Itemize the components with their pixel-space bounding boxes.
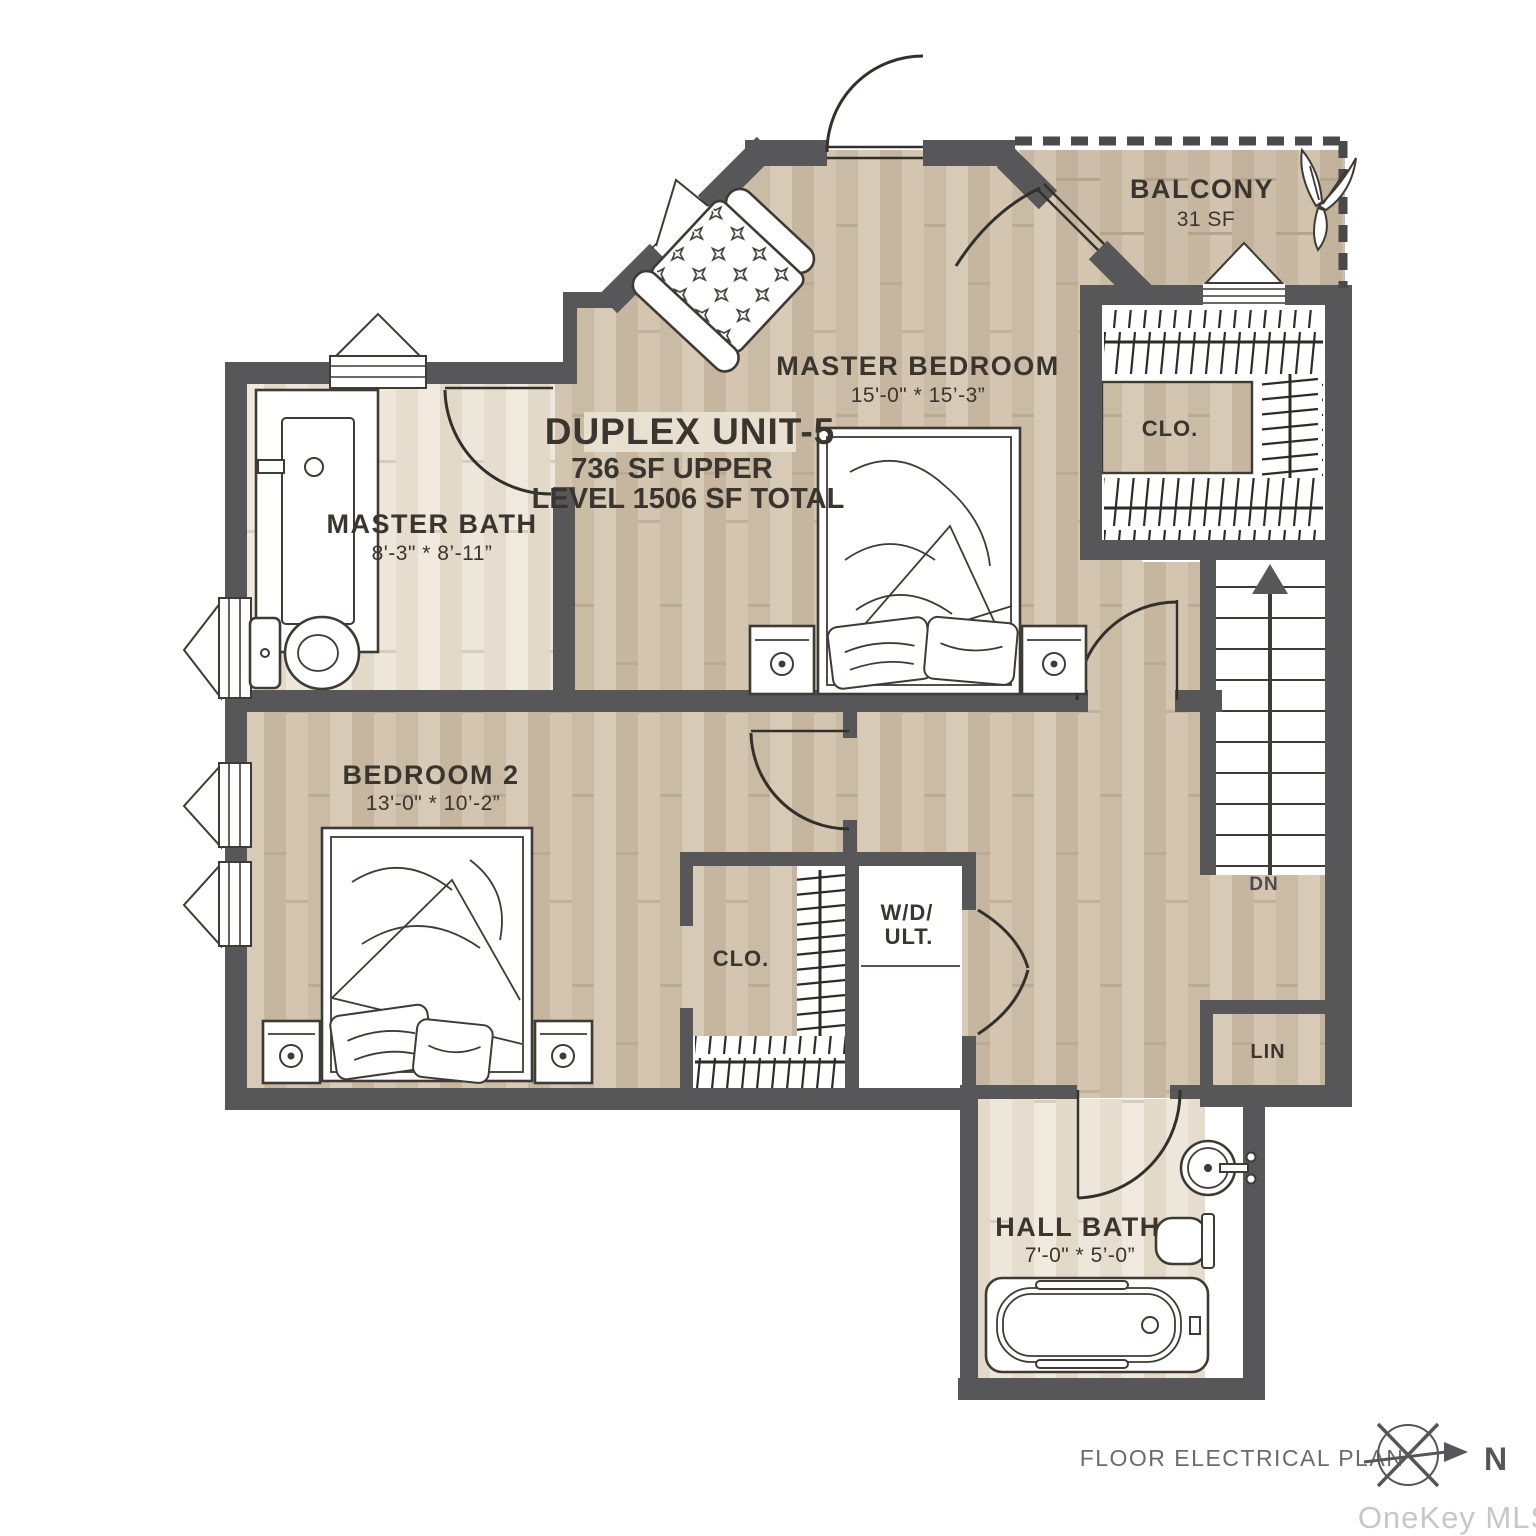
- laundry-label-2: ULT.: [885, 924, 934, 949]
- unit-title: DUPLEX UNIT-5: [545, 411, 836, 452]
- laundry-label-1: W/D/: [881, 900, 934, 925]
- master-bath-dims: 8'-3" * 8’-11”: [372, 542, 493, 565]
- hall-bath-label: HALL BATH: [995, 1212, 1160, 1242]
- bedroom2-closet-label: CLO.: [713, 946, 770, 971]
- bath-top-window: [330, 314, 426, 388]
- compass-north-label: N: [1484, 1441, 1507, 1477]
- master-nightstand-left: [750, 626, 814, 694]
- walkin-closet-label: CLO.: [1142, 416, 1199, 441]
- master-nightstand-right: [1022, 626, 1086, 694]
- master-bath-toilet: [250, 617, 359, 689]
- hall-bath-toilet: [1156, 1214, 1214, 1268]
- watermark: OneKey MLS: [1358, 1500, 1536, 1535]
- master-bedroom-label: MASTER BEDROOM: [776, 351, 1060, 381]
- hall-bath-dims: 7'-0" * 5’-0”: [1025, 1244, 1135, 1267]
- bedroom2-nightstand-left: [263, 1021, 320, 1083]
- master-bedroom-top-door: [827, 56, 923, 158]
- bedroom2-label: BEDROOM 2: [342, 760, 519, 790]
- bedroom2-left-window-2: [184, 862, 251, 946]
- unit-area-line1: 736 SF UPPER: [571, 453, 773, 485]
- balcony-label: BALCONY: [1130, 174, 1274, 204]
- plan-type-label: FLOOR ELECTRICAL PLAN: [1080, 1445, 1405, 1471]
- bedroom2-nightstand-right: [535, 1021, 592, 1083]
- bath-left-window: [184, 598, 251, 698]
- floor-plan-page: BALCONY 31 SF MASTER BEDROOM 15'-0" * 15…: [0, 0, 1536, 1536]
- linen-label: LIN: [1250, 1041, 1285, 1063]
- master-bed: [818, 428, 1020, 694]
- footer: FLOOR ELECTRICAL PLAN N OneKey MLS: [1080, 1424, 1536, 1535]
- stairs-dn-label: DN: [1249, 874, 1278, 895]
- unit-area-line2: LEVEL 1506 SF TOTAL: [532, 483, 845, 515]
- floor-plan-canvas: BALCONY 31 SF MASTER BEDROOM 15'-0" * 15…: [0, 0, 1536, 1536]
- master-bedroom-dims: 15'-0" * 15’-3”: [851, 384, 986, 407]
- bedroom2-dims: 13'-0" * 10’-2”: [366, 792, 501, 815]
- bedroom2-left-window-1: [184, 763, 251, 847]
- bedroom2-bed: [322, 828, 532, 1084]
- master-bath-label: MASTER BATH: [327, 509, 538, 539]
- bathtub: [986, 1278, 1208, 1372]
- balcony-area: 31 SF: [1177, 208, 1236, 231]
